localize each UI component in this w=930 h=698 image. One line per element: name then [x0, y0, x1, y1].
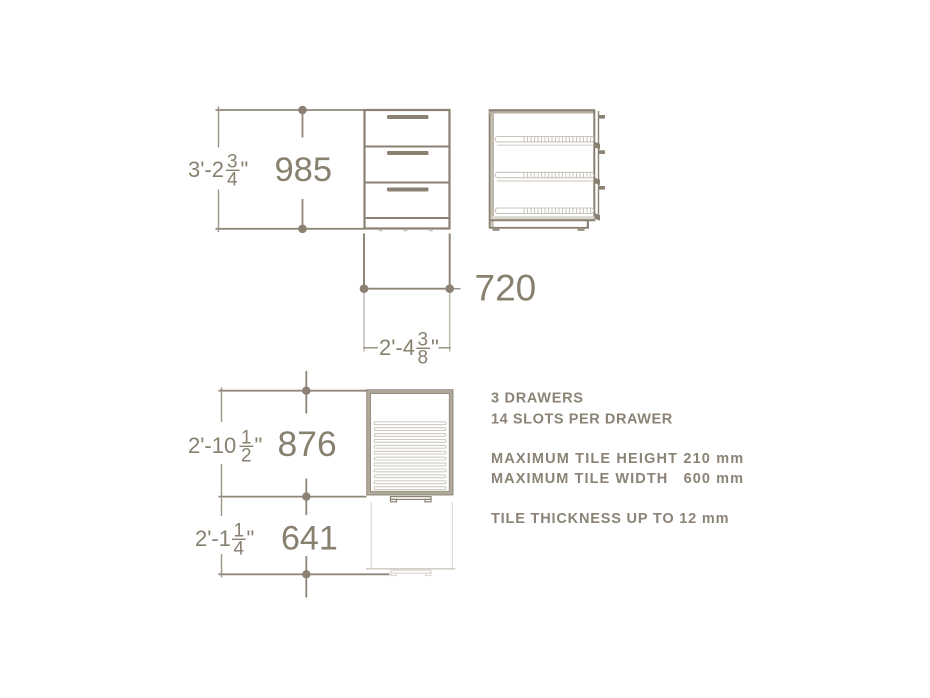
svg-text:MAXIMUM TILE HEIGHT 210 mm: MAXIMUM TILE HEIGHT 210 mm: [491, 451, 744, 467]
svg-text:4: 4: [234, 539, 245, 560]
svg-text:8: 8: [418, 348, 429, 369]
svg-text:3 DRAWERS: 3 DRAWERS: [491, 391, 584, 407]
svg-text:641: 641: [281, 520, 338, 558]
svg-text:MAXIMUM TILE WIDTH 600 mm: MAXIMUM TILE WIDTH 600 mm: [491, 471, 744, 487]
svg-text:2'-1: 2'-1: [195, 526, 231, 551]
svg-text:876: 876: [278, 424, 337, 464]
svg-text:985: 985: [275, 151, 333, 189]
svg-text:": ": [431, 335, 439, 360]
svg-text:14 SLOTS PER DRAWER: 14 SLOTS PER DRAWER: [491, 412, 673, 428]
svg-text:720: 720: [475, 268, 537, 309]
svg-text:": ": [241, 157, 249, 182]
svg-text:": ": [255, 433, 263, 458]
svg-text:2: 2: [241, 446, 252, 467]
svg-text:3'-2: 3'-2: [188, 157, 224, 182]
svg-text:2'-4: 2'-4: [379, 335, 415, 360]
svg-text:4: 4: [227, 170, 238, 191]
svg-text:2'-10: 2'-10: [188, 433, 236, 458]
svg-text:": ": [247, 526, 255, 551]
svg-text:TILE THICKNESS UP TO 12 mm: TILE THICKNESS UP TO 12 mm: [491, 511, 729, 527]
